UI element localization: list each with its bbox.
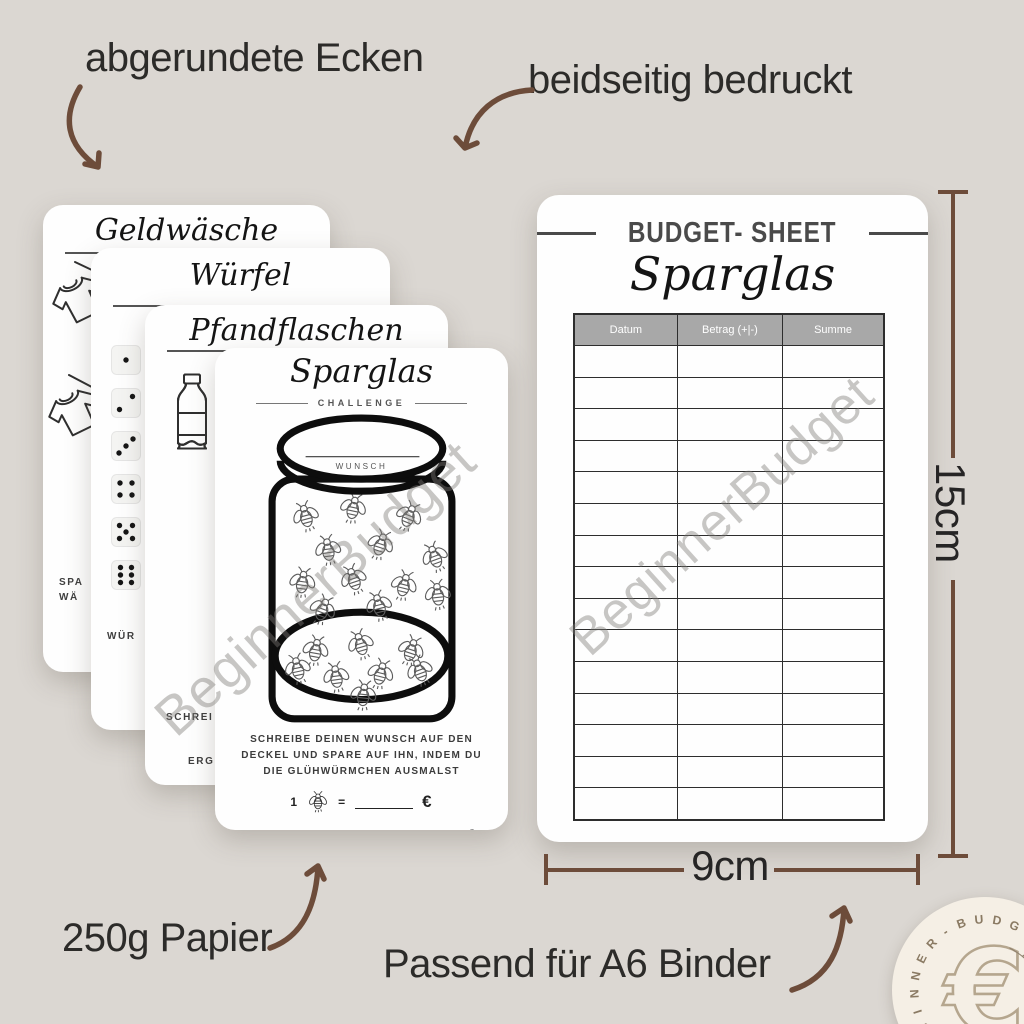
clipped-caption: ERG [188, 754, 214, 769]
width-dim-line-left [546, 868, 684, 872]
result-row: ERGEBNIS: € [215, 826, 508, 830]
sheet-header: BUDGET- SHEET [537, 217, 928, 250]
table-row [574, 725, 884, 757]
sheet-subtitle: Sparglas [537, 247, 928, 301]
firefly-icon [308, 791, 328, 812]
jar-lid-label: WUNSCH [336, 462, 388, 471]
arrow-up-right-icon [262, 852, 332, 954]
challenge-label: CHALLENGE [318, 398, 406, 408]
table-header-cell: Datum [574, 314, 677, 346]
width-dim-cap-left [544, 854, 548, 885]
firefly-icon [343, 626, 379, 663]
firefly-icon [307, 788, 329, 815]
table-row [574, 661, 884, 693]
annotation-paper-weight: 250g Papier [62, 916, 272, 961]
die-4-icon [111, 474, 141, 504]
firefly-icon [347, 679, 379, 712]
height-dim-cap-top [938, 190, 968, 194]
height-dim-line-top [951, 192, 955, 458]
width-dim-label: 9cm [686, 842, 774, 890]
clipped-caption: SPA WÄ [59, 575, 84, 605]
firefly-icon [416, 538, 453, 576]
svg-text:U: U [974, 912, 984, 927]
sheet-title: BUDGET- SHEET [628, 217, 837, 250]
table-row [574, 756, 884, 788]
die-5-icon [111, 517, 141, 547]
result-blank [340, 829, 458, 831]
svg-text:I: I [911, 1008, 925, 1016]
euro-logo-icon: € [942, 926, 1024, 1024]
arrow-down-left-icon [58, 83, 122, 179]
amount-blank [355, 794, 413, 809]
svg-text:E: E [914, 952, 930, 966]
table-row [574, 693, 884, 725]
product-promo-image: abgerundete Ecken beidseitig bedruckt 25… [0, 0, 1024, 1024]
annotation-rounded-corners: abgerundete Ecken [85, 36, 423, 81]
card-title: Sparglas [215, 352, 508, 390]
die-1-icon [111, 345, 141, 375]
die-3-icon [111, 431, 141, 461]
result-label: ERGEBNIS: [246, 829, 331, 830]
arrow-down-icon [448, 84, 538, 162]
svg-text:G: G [917, 1020, 934, 1024]
height-dim-label: 15cm [926, 462, 974, 563]
table-row [574, 788, 884, 820]
firefly-icon [393, 632, 430, 670]
challenge-subtitle-row: CHALLENGE [215, 398, 508, 408]
firefly-icon [386, 567, 421, 604]
instructions: SCHREIBE DEINEN WUNSCH AUF DEN DECKEL UN… [215, 732, 508, 780]
card-title: Würfel [91, 258, 390, 293]
rate-row: 1 = € [215, 788, 508, 815]
svg-text:N: N [907, 989, 921, 999]
width-dim-cap-right [916, 854, 920, 885]
firefly-icon [288, 498, 324, 535]
brand-badge: € BEGINNER-BUDGET [892, 897, 1024, 1024]
table-header-cell: Betrag (+|-) [677, 314, 782, 346]
die-2-icon [111, 388, 141, 418]
arrow-up-right-icon [786, 892, 858, 996]
die-6-icon [111, 560, 141, 590]
annotation-double-sided: beidseitig bedruckt [528, 58, 852, 103]
firefly-icon [361, 588, 396, 625]
table-header-cell: Summe [783, 314, 884, 346]
firefly-icon [363, 656, 398, 693]
card-title: Geldwäsche [43, 213, 330, 248]
firefly-icon [320, 660, 353, 694]
card-title: Pfandflaschen [145, 313, 448, 348]
height-dim-line-bottom [951, 580, 955, 856]
width-dim-line-right [774, 868, 918, 872]
bottle-icon [171, 373, 213, 455]
clipped-caption: WÜR [107, 629, 136, 644]
dice-column [111, 345, 141, 603]
svg-text:N: N [908, 970, 923, 981]
annotation-binder-fit: Passend für A6 Binder [383, 942, 771, 987]
height-dim-cap-bottom [938, 854, 968, 858]
svg-text:R: R [924, 936, 940, 952]
